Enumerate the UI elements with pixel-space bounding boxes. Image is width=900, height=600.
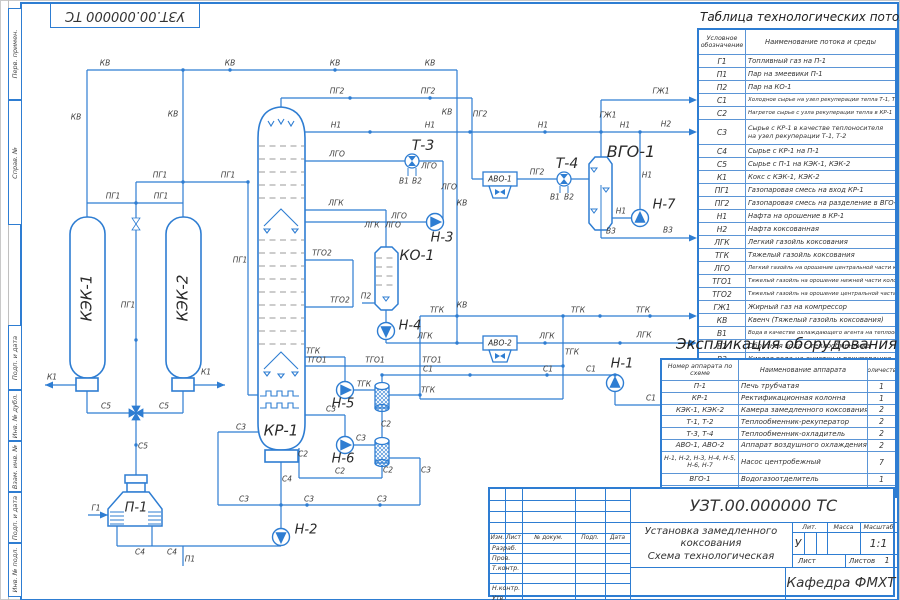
- equipment-table-row: Н-1, Н-2, Н-3, Н-4, Н-5, Н-6, Н-7Насос ц…: [662, 451, 895, 473]
- sheet-label: Лист: [792, 554, 851, 567]
- flow-table-row: С1Холодное сырье на узел рекуперации теп…: [699, 93, 895, 106]
- flow-table-title: Таблица технологических потоков: [700, 10, 900, 24]
- vessel-kr-1: [258, 107, 305, 462]
- equipment-name: Водогазоотделитель: [738, 474, 867, 485]
- flow-symbol: С5: [699, 158, 745, 170]
- signature-row-label: Утв.: [490, 593, 524, 600]
- equipment-qty: 2: [867, 428, 895, 439]
- flow-name: Холодное сырье на узел рекуперации тепла…: [745, 94, 895, 106]
- equipment-number: П-1: [662, 381, 738, 392]
- air-cooler-avo-1: [483, 172, 517, 198]
- equipment-name: Аппарат воздушного охлаждения: [738, 440, 867, 451]
- flow-col2-header: Наименование потока и среды: [745, 30, 895, 54]
- pump: [378, 323, 395, 340]
- equipment-name: Теплообменник-охладитель: [738, 428, 867, 439]
- equipment-table-row: ВГО-1Водогазоотделитель1: [662, 473, 895, 485]
- flow-symbol: ТГО1: [699, 275, 745, 287]
- flow-table-row: С5Сырье с П-1 на КЭК-1, КЭК-2: [699, 157, 895, 170]
- air-cooler-avo-2: [483, 336, 517, 362]
- flow-name: Топливный газ на П-1: [745, 55, 895, 67]
- equipment-number: ВГО-1: [662, 474, 738, 485]
- signature-row-label: Пров.: [490, 553, 524, 563]
- flow-table-row: ТГО1Тяжелый газойль на орошение нижней ч…: [699, 274, 895, 287]
- flow-name: Сырье с П-1 на КЭК-1, КЭК-2: [745, 158, 895, 170]
- vessel-ko-1: [375, 247, 398, 310]
- furnace-p-1: [108, 475, 162, 526]
- flow-symbol: КВ: [699, 314, 745, 326]
- change-header-cell: Изм.: [490, 533, 505, 543]
- lit-label: Лит.: [792, 522, 827, 532]
- change-header-cell: Дата: [605, 533, 630, 543]
- pump: [337, 382, 354, 399]
- flow-table-row: ЛГКЛегкий газойль коксования: [699, 235, 895, 248]
- flow-col1-header: Условное обозначение: [699, 30, 745, 54]
- flow-name: Газопаровая смесь на разделение в ВГО-1: [745, 197, 895, 209]
- pump: [273, 529, 290, 546]
- equipment-qty: 1: [867, 381, 895, 392]
- mass-label: Масса: [827, 522, 860, 532]
- equipment-number: Т-1, Т-2: [662, 416, 738, 427]
- flow-name: Сырье с КР-1 на П-1: [745, 145, 895, 157]
- equipment-qty: 1: [867, 393, 895, 404]
- pump: [337, 437, 354, 454]
- flow-table-row: ТГКТяжелый газойль коксования: [699, 248, 895, 261]
- flow-table-row: П1Пар на змеевики П-1: [699, 67, 895, 80]
- flow-table-row: К1Кокс с КЭК-1, КЭК-2: [699, 170, 895, 183]
- flow-name: Пар на змеевики П-1: [745, 68, 895, 80]
- cooler-t-4: [557, 172, 571, 193]
- equipment-table-row: КЭК-1, КЭК-2Камера замедленного коксован…: [662, 404, 895, 416]
- flow-table: Условное обозначение Наименование потока…: [697, 28, 897, 367]
- flow-symbol: ГЖ1: [699, 301, 745, 313]
- flow-table-row: С2Нагретое сырье с узла рекуперации тепл…: [699, 106, 895, 119]
- flow-table-row: С3Сырье с КР-1 в качестве теплоносителя …: [699, 119, 895, 144]
- equipment-table: Номер аппарата по схеме Наименование апп…: [660, 358, 897, 498]
- flow-symbol: Н2: [699, 223, 745, 235]
- flow-symbol: С1: [699, 94, 745, 106]
- flow-symbol: ТГО2: [699, 288, 745, 300]
- equipment-qty: 2: [867, 440, 895, 451]
- equip-col1-header: Номер аппарата по схеме: [662, 360, 738, 380]
- equip-col2-header: Наименование аппарата: [738, 360, 867, 380]
- flow-symbol: С2: [699, 107, 745, 119]
- equipment-number: Н-1, Н-2, Н-3, Н-4, Н-5, Н-6, Н-7: [662, 452, 738, 473]
- exchanger-t-2: [375, 438, 389, 467]
- equipment-table-row: Т-3, Т-4Теплообменник-охладитель2: [662, 427, 895, 439]
- equip-col3-header: Количество: [867, 360, 895, 380]
- flow-name: Тяжелый газойль на орошение центральной …: [745, 288, 895, 300]
- sheets-value: 1: [877, 554, 897, 567]
- flow-name: Жирный газ на компрессор: [745, 301, 895, 313]
- department: Кафедра ФМХТ: [785, 567, 897, 599]
- signature-row-label: Н.контр.: [490, 583, 524, 593]
- title-block: УЗТ.00.000000 ТС Установка замедленного …: [488, 487, 895, 597]
- equipment-table-row: КР-1Ректификационная колонна1: [662, 392, 895, 404]
- flow-table-row: Г1Топливный газ на П-1: [699, 54, 895, 67]
- signature-row-label: Т.контр.: [490, 563, 524, 573]
- flow-name: Легкий газойль коксования: [745, 236, 895, 248]
- flow-name: Сырье с КР-1 в качестве теплоносителя на…: [745, 120, 895, 144]
- flow-symbol: ЛГО: [699, 262, 745, 274]
- flow-symbol: ПГ2: [699, 197, 745, 209]
- equipment-qty: 7: [867, 452, 895, 473]
- flow-symbol: Г1: [699, 55, 745, 67]
- flow-symbol: П2: [699, 81, 745, 93]
- change-header-cell: № докум.: [522, 533, 575, 543]
- change-header-cell: Подп.: [575, 533, 605, 543]
- flow-name: Газопаровая смесь на вход КР-1: [745, 184, 895, 196]
- equipment-qty: 2: [867, 405, 895, 416]
- flow-table-row: КВКвенч (Тяжелый газойль коксования): [699, 313, 895, 326]
- flow-name: Нагретое сырье с узла рекуперации тепла …: [745, 107, 895, 119]
- equipment-number: КЭК-1, КЭК-2: [662, 405, 738, 416]
- equipment-number: АВО-1, АВО-2: [662, 440, 738, 451]
- flow-name: Квенч (Тяжелый газойль коксования): [745, 314, 895, 326]
- flow-symbol: Н1: [699, 210, 745, 222]
- flow-name: Легкий газойль на орошение центральной ч…: [745, 262, 895, 274]
- scale-label: Масштаб: [860, 522, 897, 532]
- equipment-table-row: Т-1, Т-2Теплообменник-рекуператор2: [662, 415, 895, 427]
- signature-row-label: Разраб.: [490, 543, 524, 553]
- flow-symbol: ЛГК: [699, 236, 745, 248]
- flow-name: Тяжелый газойль на орошение нижней части…: [745, 275, 895, 287]
- flow-table-row: ГЖ1Жирный газ на компрессор: [699, 300, 895, 313]
- flow-name: Пар на КО-1: [745, 81, 895, 93]
- flow-table-row: П2Пар на КО-1: [699, 80, 895, 93]
- pump: [427, 214, 444, 231]
- pump: [607, 375, 624, 392]
- flow-symbol: С4: [699, 145, 745, 157]
- flow-name: Нафта на орошение в КР-1: [745, 210, 895, 222]
- equipment-table-row: АВО-1, АВО-2Аппарат воздушного охлаждени…: [662, 439, 895, 451]
- flow-symbol: К1: [699, 171, 745, 183]
- title-block-doc-title: Установка замедленного коксования Схема …: [630, 522, 792, 567]
- equipment-name: Насос центробежный: [738, 452, 867, 473]
- equipment-name: Печь трубчатая: [738, 381, 867, 392]
- equipment-qty: 2: [867, 416, 895, 427]
- equipment-qty: 1: [867, 474, 895, 485]
- equipment-number: КР-1: [662, 393, 738, 404]
- flow-table-row: Н1Нафта на орошение в КР-1: [699, 209, 895, 222]
- equipment-table-title: Экспликация оборудования: [676, 335, 897, 353]
- title-block-code: УЗТ.00.000000 ТС: [630, 489, 897, 522]
- scale-value: 1:1: [860, 532, 897, 554]
- sheets-label: Листов: [845, 554, 881, 567]
- equipment-name: Теплообменник-рекуператор: [738, 416, 867, 427]
- flow-name: Кокс с КЭК-1, КЭК-2: [745, 171, 895, 183]
- change-header-cell: Лист: [505, 533, 522, 543]
- flow-name: Тяжелый газойль коксования: [745, 249, 895, 261]
- equipment-name: Ректификационная колонна: [738, 393, 867, 404]
- vessel-kek-1: [70, 217, 105, 391]
- equipment-name: Камера замедленного коксования: [738, 405, 867, 416]
- cooler-t-3: [405, 154, 419, 176]
- flow-table-row: С4Сырье с КР-1 на П-1: [699, 144, 895, 157]
- equipment-table-row: П-1Печь трубчатая1: [662, 380, 895, 392]
- flow-symbol: С3: [699, 120, 745, 144]
- lit-value: У: [792, 532, 804, 554]
- flow-symbol: ТГК: [699, 249, 745, 261]
- vessel-vgo-1: [589, 157, 612, 230]
- exchanger-t-1: [375, 383, 389, 412]
- flow-table-row: Н2Нафта коксованная: [699, 222, 895, 235]
- flow-symbol: П1: [699, 68, 745, 80]
- signature-row-label: [490, 573, 524, 583]
- pump: [632, 210, 649, 227]
- flow-table-row: ПГ2Газопаровая смесь на разделение в ВГО…: [699, 196, 895, 209]
- flow-symbol: ПГ1: [699, 184, 745, 196]
- flow-name: Нафта коксованная: [745, 223, 895, 235]
- equipment-number: Т-3, Т-4: [662, 428, 738, 439]
- vessel-kek-2: [166, 217, 201, 391]
- coking-unit-process-flow-drawing: { "colors":{"accent":"#2e7dd2","ink":"#3…: [0, 0, 900, 600]
- flow-table-row: ТГО2Тяжелый газойль на орошение централь…: [699, 287, 895, 300]
- flow-table-row: ЛГОЛегкий газойль на орошение центрально…: [699, 261, 895, 274]
- flow-table-row: ПГ1Газопаровая смесь на вход КР-1: [699, 183, 895, 196]
